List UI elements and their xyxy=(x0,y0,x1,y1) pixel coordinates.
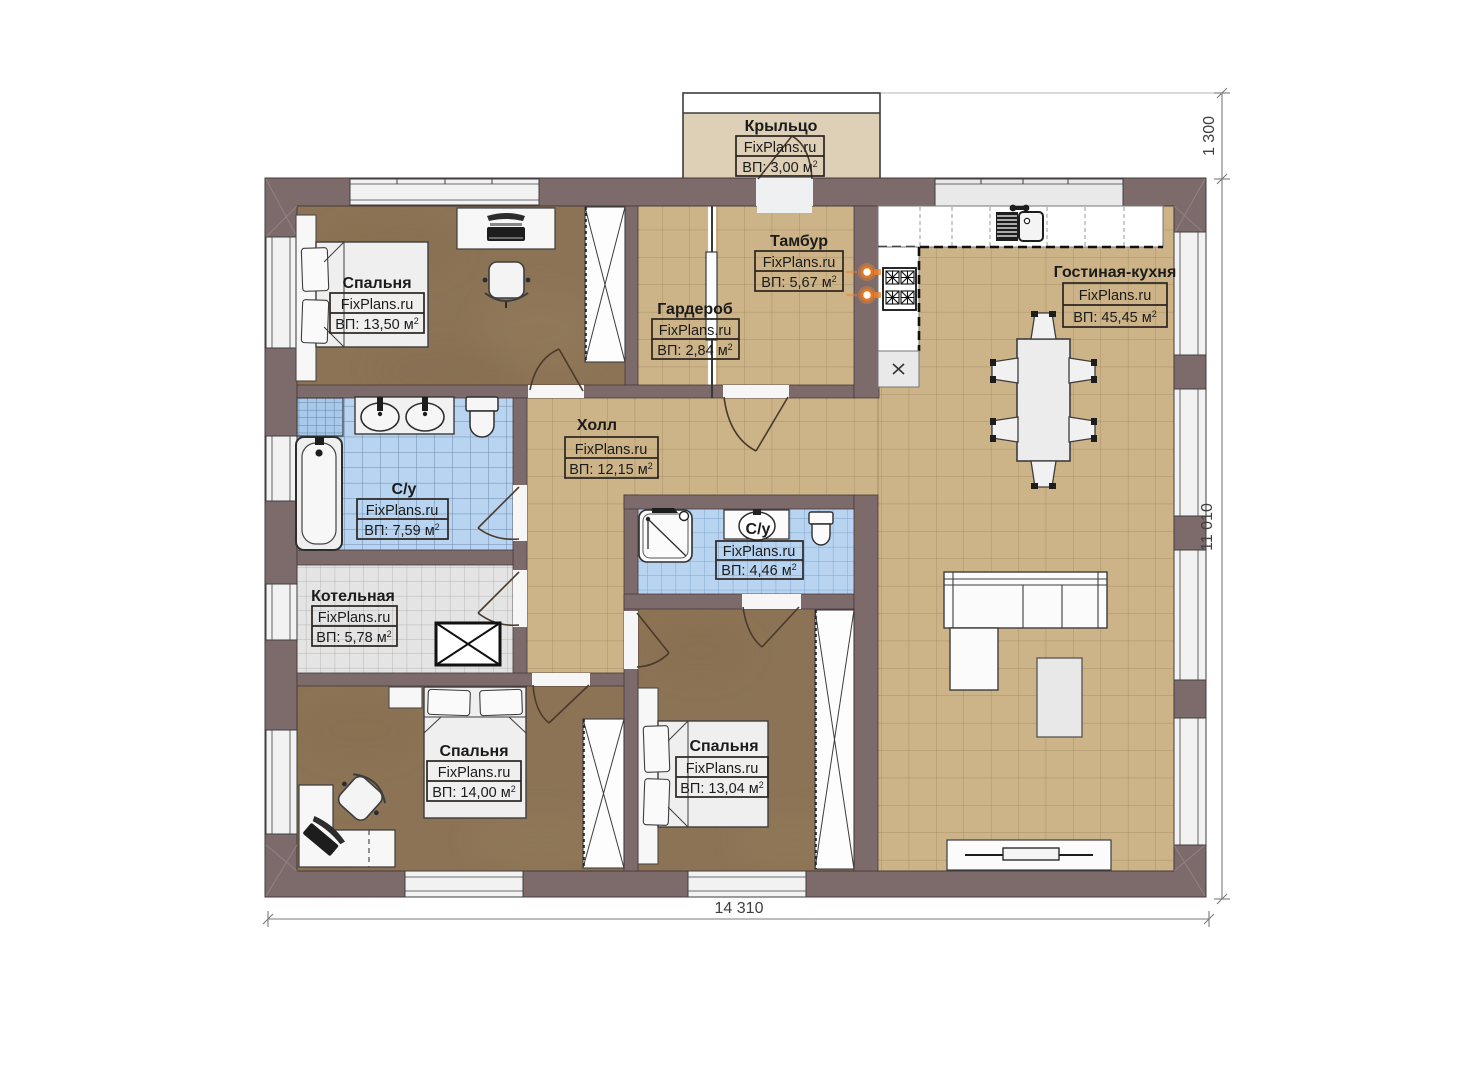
svg-text:ВП: 13,50 м2: ВП: 13,50 м2 xyxy=(335,316,418,333)
svg-text:11 010: 11 010 xyxy=(1199,503,1216,551)
svg-text:Спальня: Спальня xyxy=(342,275,411,292)
svg-text:Тамбур: Тамбур xyxy=(770,233,828,250)
svg-text:С/у: С/у xyxy=(392,481,417,498)
svg-text:FixPlans.ru: FixPlans.ru xyxy=(438,765,511,781)
svg-text:14 310: 14 310 xyxy=(715,900,764,917)
svg-text:Котельная: Котельная xyxy=(311,588,395,605)
svg-text:Гостиная-кухня: Гостиная-кухня xyxy=(1054,264,1177,281)
svg-text:FixPlans.ru: FixPlans.ru xyxy=(575,442,648,458)
svg-text:FixPlans.ru: FixPlans.ru xyxy=(763,255,836,271)
svg-text:С/у: С/у xyxy=(746,521,771,538)
svg-text:FixPlans.ru: FixPlans.ru xyxy=(723,544,796,560)
svg-text:FixPlans.ru: FixPlans.ru xyxy=(1079,288,1152,304)
svg-text:Спальня: Спальня xyxy=(439,743,508,760)
svg-text:FixPlans.ru: FixPlans.ru xyxy=(659,323,732,339)
svg-text:ВП: 14,00 м2: ВП: 14,00 м2 xyxy=(432,784,515,801)
svg-text:ВП: 5,78 м2: ВП: 5,78 м2 xyxy=(316,629,391,646)
svg-text:Гардероб: Гардероб xyxy=(657,301,733,318)
svg-text:ВП: 3,00 м2: ВП: 3,00 м2 xyxy=(742,159,817,176)
svg-text:ВП: 4,46 м2: ВП: 4,46 м2 xyxy=(721,562,796,579)
svg-text:ВП: 13,04 м2: ВП: 13,04 м2 xyxy=(680,780,763,797)
svg-text:FixPlans.ru: FixPlans.ru xyxy=(341,297,414,313)
svg-text:ВП: 7,59 м2: ВП: 7,59 м2 xyxy=(364,522,439,539)
svg-text:FixPlans.ru: FixPlans.ru xyxy=(686,761,759,777)
svg-text:ВП: 2,84 м2: ВП: 2,84 м2 xyxy=(657,342,732,359)
svg-text:ВП: 12,15 м2: ВП: 12,15 м2 xyxy=(569,461,652,478)
svg-text:FixPlans.ru: FixPlans.ru xyxy=(318,610,391,626)
svg-text:ВП: 5,67 м2: ВП: 5,67 м2 xyxy=(761,274,836,291)
svg-text:1 300: 1 300 xyxy=(1201,116,1218,156)
svg-text:Холл: Холл xyxy=(577,417,617,434)
svg-text:Спальня: Спальня xyxy=(689,738,758,755)
svg-text:Крыльцо: Крыльцо xyxy=(745,118,818,135)
svg-text:FixPlans.ru: FixPlans.ru xyxy=(744,140,817,156)
svg-text:ВП: 45,45 м2: ВП: 45,45 м2 xyxy=(1073,309,1156,326)
svg-text:FixPlans.ru: FixPlans.ru xyxy=(366,503,439,519)
